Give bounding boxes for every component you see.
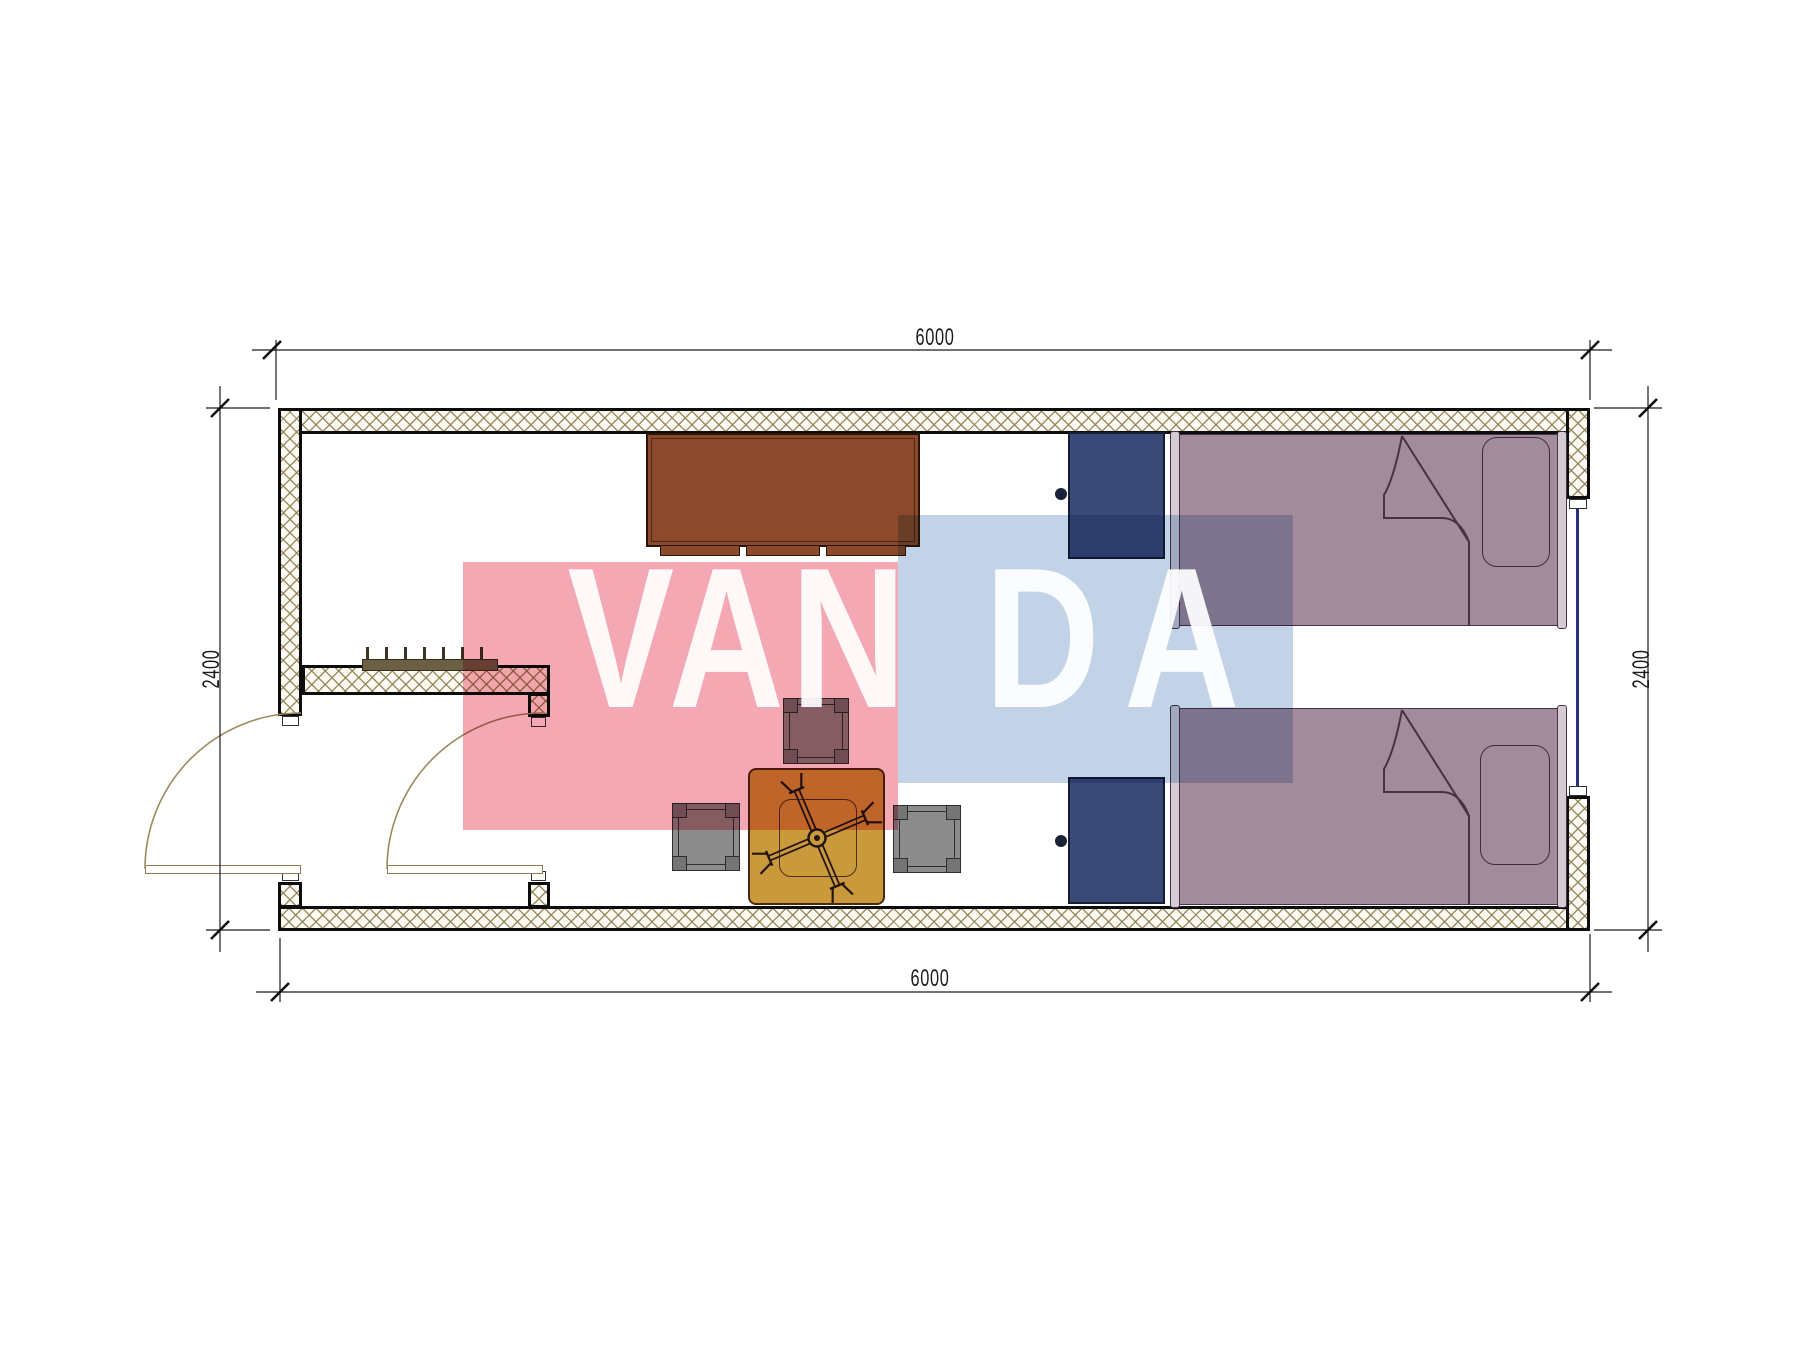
dimension-label-right: 2400 (1628, 649, 1656, 688)
dimension-label-bottom: 6000 (910, 965, 949, 993)
dimension-label-left: 2400 (198, 649, 226, 688)
floor-plan-canvas: 6000 6000 2400 2400 VAN DA (0, 0, 1800, 1350)
bed-top-blanket-fold (1384, 436, 1469, 625)
watermark-text-da: DA (984, 539, 1263, 739)
dimension-label-top: 6000 (915, 324, 954, 352)
entrance-door-swing-arc (145, 713, 301, 869)
watermark-text-van: VAN (567, 539, 912, 739)
bed-bottom-blanket-fold (1384, 710, 1469, 904)
